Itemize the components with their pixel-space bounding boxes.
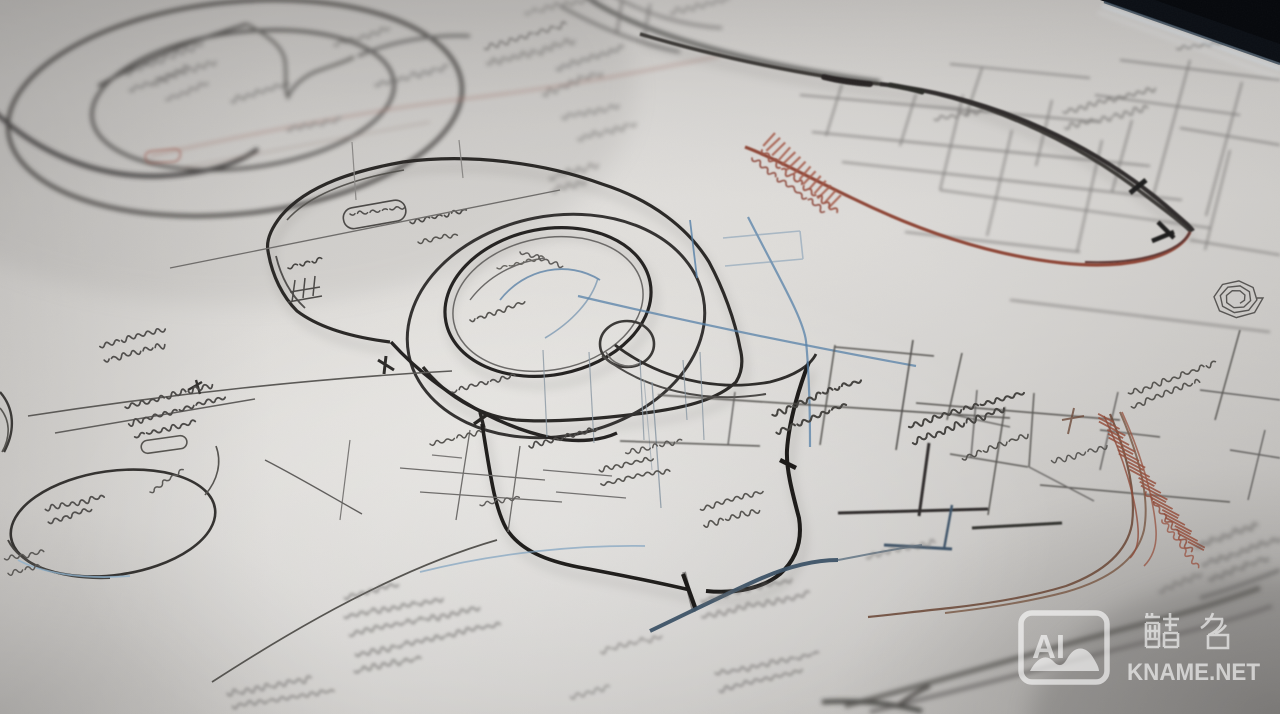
svg-text:KNAME.NET: KNAME.NET: [1127, 659, 1260, 686]
